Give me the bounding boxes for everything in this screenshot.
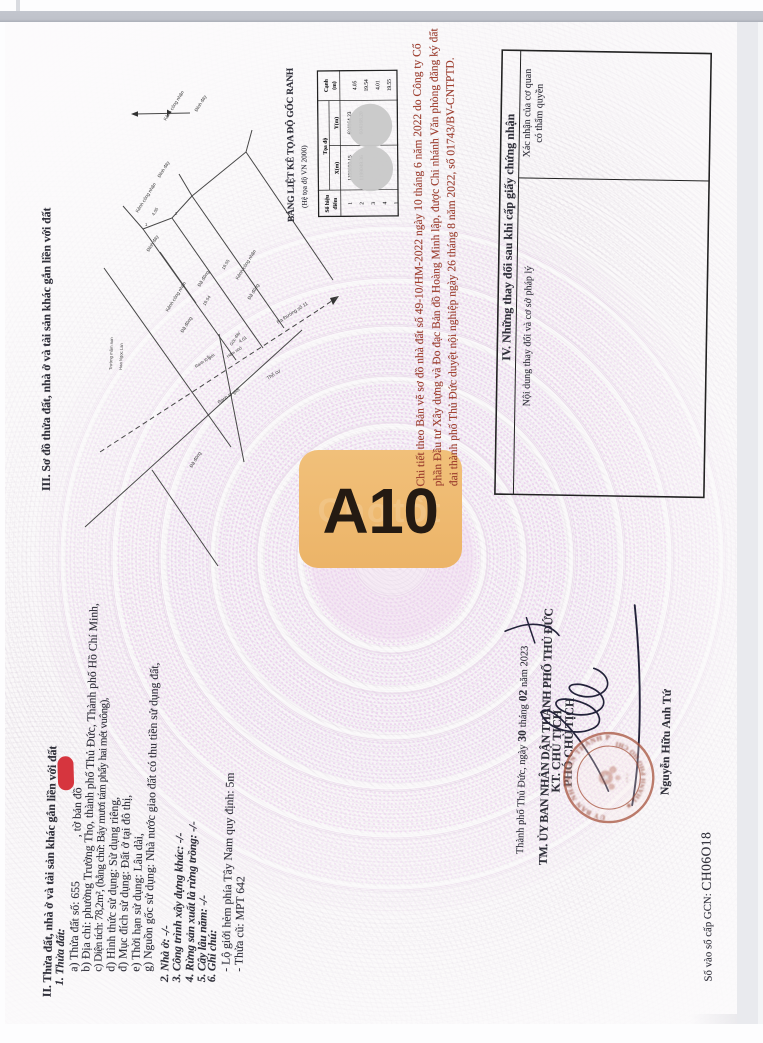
svg-text:4.05: 4.05 [151,206,160,216]
svg-text:Đỉnh đáy: Đỉnh đáy [156,159,171,178]
svg-text:Đã đồng: Đã đồng [197,270,211,288]
svg-text:Ranh lộ giới: Ranh lộ giới [194,352,216,369]
svg-text:1: 1 [145,222,148,227]
svg-text:19.54: 19.54 [202,294,212,306]
svg-text:Hẻm nhỏ: Hẻm nhỏ [226,345,244,359]
svg-text:Ranh lộ giới: Ranh lộ giới [217,387,241,405]
svg-text:Kênh công nhận: Kênh công nhận [235,249,258,281]
svg-text:Hoa Ngọc Lan: Hoa Ngọc Lan [118,342,124,370]
svg-text:Trường mầm non: Trường mầm non [108,337,114,370]
svg-text:Đã đồng: Đã đồng [189,451,203,469]
svg-text:Kênh công nhận: Kênh công nhận [165,281,188,313]
svg-text:Thổ cư: Thổ cư [265,367,282,382]
svg-text:Kênh công nhận: Kênh công nhận [163,90,186,122]
svg-text:Đã đồng: Đã đồng [180,316,194,334]
svg-text:19.55: 19.55 [221,258,231,270]
svg-text:Đỉnh đáy: Đỉnh đáy [193,93,208,112]
svg-text:Ra Đường số 11: Ra Đường số 11 [276,301,310,326]
